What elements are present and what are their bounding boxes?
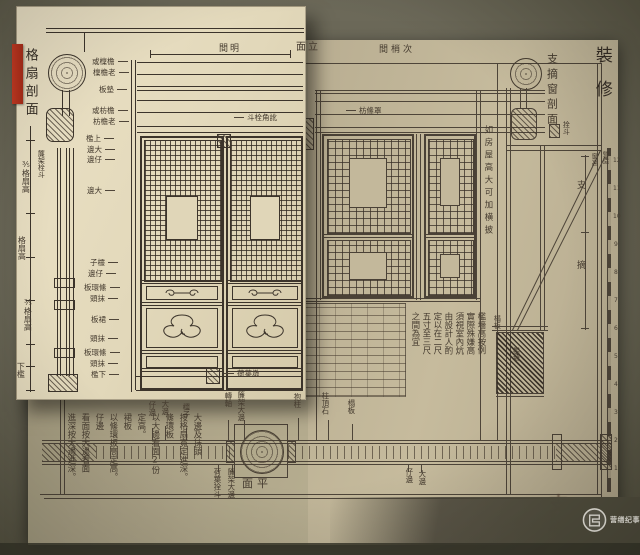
lianjia-note: 簾架栓斗 [37, 150, 44, 178]
ruler-number: 3 [614, 410, 618, 416]
inset-side-title: 格扇剖面 [23, 48, 37, 120]
dim-upper: ⅗格扇高 [21, 160, 29, 193]
plan-label-lianjiadabian-top: 簾架大邊 [237, 391, 245, 421]
pin-label: 拴斗 [562, 121, 569, 135]
plan-label-taban: 榻板 [347, 399, 355, 414]
note-left-col2: 按格扇寬定進深。 [178, 413, 187, 481]
part-label-dabian-1: 邊大 [87, 146, 115, 154]
ruler-number: 10 [613, 214, 621, 220]
heyedun-label: 荷葉墩 [224, 370, 260, 378]
part-label-purlin-2: 檁檐老 [93, 69, 129, 77]
transom-note: 如房屋高大可加横披 [483, 125, 492, 238]
part-label-taohuanban-1: 板環絛 [84, 284, 120, 292]
plan-title: 面平 [242, 478, 272, 490]
note-left-col9: 看面按大邊看面 [80, 413, 89, 473]
note-left-col7: 以絛環板高定高。 [108, 413, 117, 481]
ruler-number: 2 [614, 438, 618, 444]
note-right-col6: 五寸至三尺 [421, 312, 430, 355]
note-left-col10: 進深按大邊進深。 [66, 413, 75, 481]
note-right-col2: 實際殊嫌高 [465, 312, 474, 355]
watermark-text: 营缮纪事 [610, 515, 640, 525]
part-label-shangkan: 檻上 [86, 135, 114, 143]
ruler-number: 6 [614, 326, 618, 332]
note-right-col4: 由設計人酌 [443, 312, 452, 355]
bay-label: 間明 [219, 45, 241, 54]
note-right-col5: 定以在二尺 [432, 312, 441, 355]
watermark-logo-icon [582, 507, 607, 533]
part-label-motou-1: 頭抹 [90, 295, 118, 303]
dim-mid: 格扇高 [17, 236, 25, 260]
note-right-col1: 檻墻高按例 [476, 312, 485, 355]
part-label-purlin-1: 或檁檐 [92, 58, 128, 66]
ruler-number: 12 [613, 158, 621, 164]
plan-label-zibian-r: 仔邊 [405, 468, 413, 483]
part-label-zibian-1: 邊仔 [87, 156, 115, 164]
note-left-col4: 以大邊看面2份 [150, 413, 159, 474]
corner-pin-label: 斗栓角訛 [234, 114, 277, 122]
plan-label-lianjiadabian-bottom: 簾架大邊 [227, 468, 235, 498]
note-left-col1: 大邊及抹頭 [192, 413, 201, 456]
dim-zhai: 摘 [577, 262, 586, 271]
note-left-col3: 絛環板 [164, 413, 173, 439]
ruler-number: 5 [614, 354, 618, 360]
part-label-xiakan: 檻下 [91, 371, 119, 379]
plan-label-baozhu: 抱柱 [293, 393, 301, 408]
plan-label-heyeshuandou: 荷葉拴斗 [213, 468, 221, 498]
ruler-number: 1 [614, 466, 618, 472]
ruler-number: 4 [614, 382, 618, 388]
part-label-taohuanban-2: 板環絛 [84, 349, 120, 357]
watermark: 营缮纪事 [582, 503, 640, 537]
elevation-title: 面立 [296, 43, 320, 54]
part-label-dianban: 板墊 [99, 86, 127, 94]
part-label-fang-1: 或枋檐 [92, 107, 128, 115]
part-label-fang-2: 枋檐老 [93, 118, 129, 126]
scanned-plate-photo: 营缮纪事 格扇剖面簾架栓斗⅗格扇高格扇高⅗格扇高下檻間明或檁檐檁檐老板墊或枋檐枋… [0, 0, 640, 555]
part-label-dabian-2: 邊大 [87, 187, 115, 195]
bottom-gutter-shadow [0, 543, 640, 555]
note-left-col5: 定高。 [136, 413, 145, 439]
part-label-qunban: 板裙 [91, 316, 119, 324]
plan-label-zhudingshi: 柱頂石 [321, 392, 329, 415]
note-right-col3: 須視室內炕 [454, 312, 463, 355]
ruler-number: 11 [613, 186, 621, 192]
part-label-zibian-2: 邊仔 [88, 270, 116, 278]
part-label-motou-2: 頭抹 [90, 335, 118, 343]
annotation-layer: 格扇剖面簾架栓斗⅗格扇高格扇高⅗格扇高下檻間明或檁檐檁檐老板墊或枋檐枋檐老檻上邊… [0, 0, 640, 555]
dim-chuanggao: 窗高 [590, 153, 597, 166]
note-left-col6: 裙板 [122, 413, 131, 430]
dim-bottom-sill: 下檻 [16, 362, 24, 378]
note-right-col7: 之間為宜 [410, 312, 419, 346]
plan-label-zhuanzhou: 轉軸 [224, 392, 232, 407]
ruler-number: 9 [614, 242, 618, 248]
dim-zhi: 支 [577, 182, 586, 191]
ruler-number: 8 [614, 270, 618, 276]
dim-lower: ⅗格扇高 [23, 298, 31, 331]
wall-label-kanqiang: 檻墻 [512, 347, 519, 361]
ruler-number: 7 [614, 298, 618, 304]
part-label-motou-3: 頭抹 [90, 360, 118, 368]
wall-label-taban: 榻板 [493, 315, 500, 329]
section-title: 支摘窗剖面 [546, 53, 558, 128]
band-label: 枋絛罩 [346, 107, 382, 115]
part-label-lingzi: 子欞 [90, 259, 118, 267]
plate-title: 裝修 [592, 46, 610, 114]
plan-label-dabian-r: 大邊 [418, 470, 426, 485]
note-left-col8: 仔邊 [94, 413, 103, 430]
bays-label: 間梢次 [379, 46, 415, 55]
dim-yingzao: 營造 [601, 151, 608, 164]
